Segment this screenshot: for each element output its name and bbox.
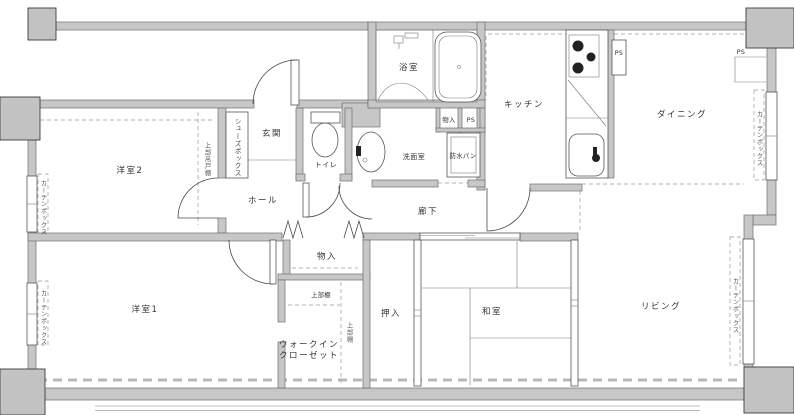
label-ps-bath: PS <box>467 117 475 124</box>
label-shoe-box: シューズボックス <box>233 118 241 177</box>
room-label-bedroom2: 洋室2 <box>117 165 144 176</box>
kitchen-ps-box <box>612 40 626 75</box>
room-label-wic-line2: クローゼット <box>279 350 339 361</box>
label-ps-kitchen: PS <box>615 50 623 57</box>
label-upper-hanging-cabinet: 上部吊戸棚 <box>204 141 211 178</box>
room-label-bedroom1: 洋室1 <box>132 304 159 315</box>
room-label-japanese-room: 和室 <box>482 306 502 317</box>
label-curtain-box-dining: カーテンボックス <box>756 111 763 167</box>
bathtub <box>435 32 481 102</box>
room-label-washroom: 洗面室 <box>403 152 426 161</box>
plan-background <box>0 0 794 415</box>
room-label-living: リビング <box>641 301 681 312</box>
label-curtain-box-bedroom2: カーテンボックス <box>40 180 47 236</box>
kitchen-sink <box>569 134 604 176</box>
room-label-storage-corridor: 物入 <box>317 251 337 262</box>
room-label-kitchen: キッチン <box>504 100 544 110</box>
label-curtain-box-living: カーテンボックス <box>732 278 739 334</box>
label-upper-shelf-vertical: 上部棚 <box>346 321 353 344</box>
floor-plan-canvas: 洋室2 洋室1 玄関 ホール トイレ 洗面室 防水パン 浴室 キッチン ダイニン… <box>0 0 794 415</box>
room-label-hall: ホール <box>248 196 278 206</box>
room-label-wic-line1: ウォークイン <box>279 340 339 350</box>
room-label-entrance: 玄関 <box>262 128 282 139</box>
room-label-closet: 押入 <box>381 308 401 319</box>
kitchen-counter <box>566 30 608 178</box>
label-waterproof-pan: 防水パン <box>450 151 477 160</box>
label-curtain-box-bedroom1: カーテンボックス <box>40 290 47 346</box>
floor-plan-page: 洋室2 洋室1 玄関 ホール トイレ 洗面室 防水パン 浴室 キッチン ダイニン… <box>0 0 794 415</box>
room-label-dining: ダイニング <box>657 109 707 120</box>
label-ps-dining: PS <box>737 49 745 56</box>
room-label-corridor: 廊下 <box>418 206 438 217</box>
toilet-fixture <box>311 112 340 157</box>
room-label-bathroom: 浴室 <box>399 62 419 73</box>
label-storage-bath: 物入 <box>442 115 456 124</box>
label-upper-shelf: 上部棚 <box>311 290 331 299</box>
room-label-toilet: トイレ <box>315 161 338 169</box>
